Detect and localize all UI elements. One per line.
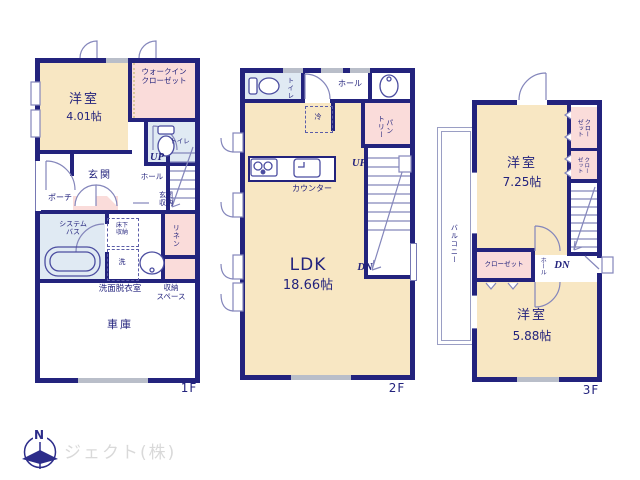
room-genkan-storage	[73, 196, 118, 210]
stairwell-2f	[368, 148, 410, 275]
window	[291, 375, 351, 380]
wall	[40, 210, 195, 214]
wall	[301, 73, 305, 99]
room-label: 車庫	[94, 318, 146, 331]
wall	[531, 252, 535, 278]
stairs-down-label: DN	[550, 260, 574, 273]
room-label: バルコニー	[450, 218, 458, 270]
window	[78, 378, 148, 383]
room-size-label: 4.01帖	[40, 110, 128, 123]
room-label: ホール	[132, 172, 172, 181]
room-label: 収納 スペース	[148, 283, 194, 301]
room-label: ウォークイン クローゼット	[134, 67, 194, 85]
window	[350, 68, 370, 73]
wall	[161, 214, 165, 279]
room-label: ホール	[328, 79, 372, 89]
room-size-label: 18.66帖	[258, 278, 358, 294]
stairs-icon	[571, 187, 599, 269]
room-label: リネン	[172, 219, 180, 253]
door-arc-icon	[80, 41, 97, 58]
stairs-up-label: UP	[346, 158, 372, 171]
porch-opening	[35, 161, 41, 211]
wall	[567, 252, 602, 256]
room-label: LDK	[268, 255, 348, 275]
door-icon	[602, 257, 613, 273]
room-label: 洗	[110, 258, 134, 266]
room-label: クロー ゼット	[576, 111, 590, 145]
washbasin-icon	[380, 75, 398, 97]
wall	[165, 255, 195, 259]
wall	[597, 100, 602, 382]
floor-label-1f: 1F	[176, 381, 202, 395]
wall	[364, 275, 410, 279]
room-size-label: 7.25帖	[484, 175, 560, 189]
wall	[240, 68, 245, 380]
door-opening	[597, 258, 602, 273]
window	[106, 58, 128, 63]
room-size-label: 5.88帖	[494, 329, 570, 343]
compass-north-label: N	[33, 428, 45, 442]
floorplan-canvas: 洋室 4.01帖 ウォークイン クローゼット トイレ 玄関 ポーチ UP ホール…	[0, 0, 640, 480]
room-label: 玄関	[78, 170, 122, 182]
floor-label-2f: 2F	[384, 381, 410, 395]
wall	[40, 150, 132, 154]
company-logo-text: ジェクト(株)	[64, 438, 176, 463]
room-label: 床下 収納	[109, 222, 135, 236]
window	[321, 68, 343, 73]
window	[517, 377, 559, 382]
wall	[477, 278, 535, 282]
window	[410, 243, 417, 281]
window	[283, 68, 303, 73]
wall	[195, 58, 200, 383]
wall	[245, 99, 305, 103]
wall	[128, 63, 132, 122]
room-storage-1f	[165, 259, 195, 279]
stairs-down-label: DN	[352, 262, 378, 275]
wall	[477, 248, 535, 252]
wall	[567, 179, 597, 183]
room-label: 玄関 収納	[150, 191, 182, 208]
room-label: 冷	[308, 113, 328, 121]
window	[472, 295, 477, 329]
room-label: 洗面脱衣室	[84, 284, 156, 294]
door-arc-icon	[139, 41, 156, 58]
room-label: 洋室	[497, 308, 567, 324]
room-label: クロー ゼット	[576, 153, 589, 178]
kitchen-counter	[248, 156, 336, 182]
wall	[361, 103, 365, 148]
door-arc-icon	[305, 74, 330, 99]
window	[472, 172, 477, 234]
room-label: ホール	[539, 255, 546, 277]
room-label: クローゼット	[479, 261, 529, 269]
room-label: システム バス	[46, 220, 100, 237]
stairs-up-label: UP	[144, 152, 170, 165]
wall	[128, 118, 195, 122]
room-label: カウンター	[288, 184, 336, 194]
wall	[70, 154, 74, 176]
door-arc-icon	[519, 73, 546, 100]
wall	[472, 100, 477, 382]
room-label: トイレ	[166, 138, 194, 146]
floor-label-3f: 3F	[578, 383, 604, 397]
room-label: 洋室	[40, 92, 128, 108]
room-label: トイレ	[285, 76, 293, 100]
wall	[410, 68, 415, 380]
room-label: ポーチ	[42, 193, 78, 203]
room-label: 洋室	[487, 156, 557, 172]
wall	[571, 148, 597, 151]
door-opening	[517, 100, 547, 105]
room-label: パン トリー	[377, 108, 394, 146]
